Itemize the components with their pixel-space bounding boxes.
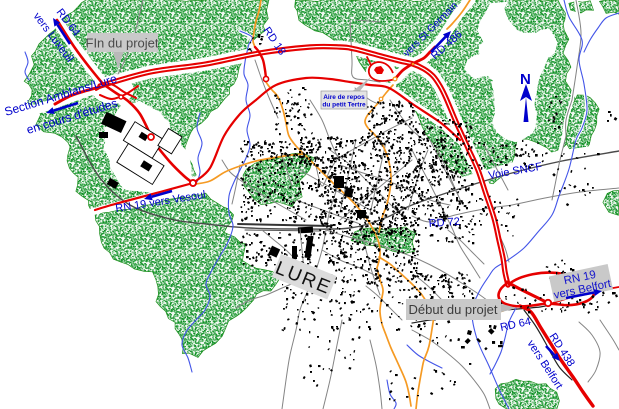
svg-text:du petit Tertre: du petit Tertre: [322, 102, 366, 109]
svg-text:N: N: [520, 71, 531, 88]
svg-text:Aire de repos: Aire de repos: [323, 94, 365, 101]
svg-text:FIn du projet: FIn du projet: [86, 36, 159, 51]
svg-text:RD 72: RD 72: [428, 216, 460, 230]
svg-text:Début du projet: Début du projet: [409, 302, 498, 317]
